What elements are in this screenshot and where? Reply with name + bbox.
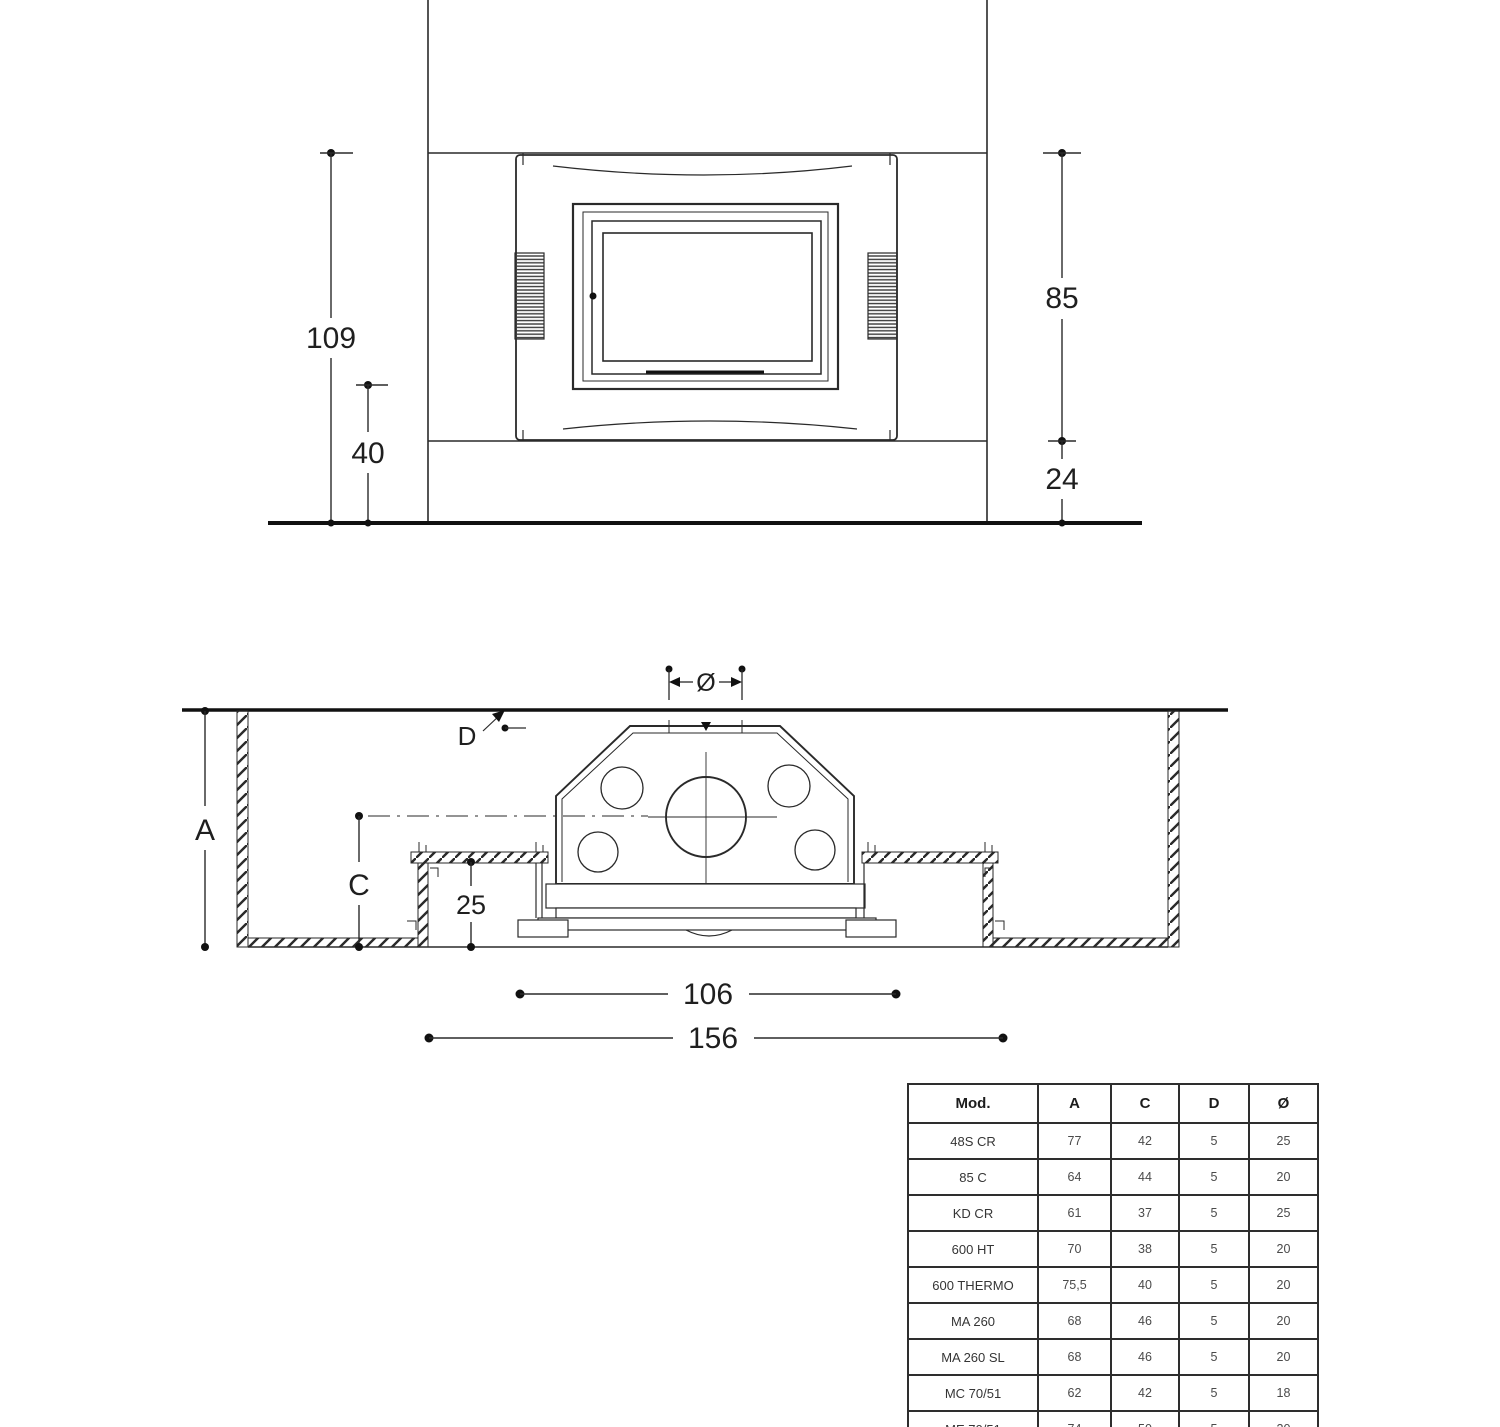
cell-mod: 600 HT (908, 1231, 1038, 1267)
floor-slab-right (993, 938, 1168, 947)
dim-D-label: D (458, 721, 477, 751)
cell-a: 70 (1038, 1231, 1111, 1267)
table-row: 600 HT 70 38 5 20 (908, 1231, 1318, 1267)
cell-diam: 18 (1249, 1375, 1318, 1411)
cell-d: 5 (1179, 1411, 1249, 1427)
table-row: 48S CR 77 42 5 25 (908, 1123, 1318, 1159)
header-a: A (1038, 1084, 1111, 1123)
cell-diam: 20 (1249, 1159, 1318, 1195)
section-wall-left (237, 711, 248, 947)
cell-d: 5 (1179, 1231, 1249, 1267)
cell-c: 46 (1111, 1339, 1179, 1375)
dimension-106: 106 (516, 978, 901, 1011)
door-handle (590, 293, 597, 300)
dim-A-label: A (195, 814, 215, 847)
dimension-24: 24 (1045, 441, 1078, 527)
cell-d: 5 (1179, 1123, 1249, 1159)
cell-c: 44 (1111, 1159, 1179, 1195)
cell-mod: ME 70/51 (908, 1411, 1038, 1427)
cell-diam: 20 (1249, 1267, 1318, 1303)
cell-c: 40 (1111, 1267, 1179, 1303)
cell-mod: 85 C (908, 1159, 1038, 1195)
cell-mod: 600 THERMO (908, 1267, 1038, 1303)
cell-a: 61 (1038, 1195, 1111, 1231)
dim-flue-label: Ø (696, 669, 715, 697)
dimension-25: 25 (456, 858, 486, 951)
dim-40-label: 40 (351, 437, 384, 470)
cell-a: 62 (1038, 1375, 1111, 1411)
dimension-85: 85 (1043, 149, 1081, 445)
dimension-C: C (348, 812, 370, 951)
cell-c: 46 (1111, 1303, 1179, 1339)
spec-table: Mod. A C D Ø 48S CR 77 42 5 25 85 C 64 4… (907, 1083, 1317, 1427)
header-diam: Ø (1249, 1084, 1318, 1123)
section-view-drawing: Ø D (182, 666, 1228, 1056)
cell-a: 64 (1038, 1159, 1111, 1195)
cell-diam: 20 (1249, 1231, 1318, 1267)
dim-C-label: C (348, 869, 370, 902)
cell-mod: MA 260 SL (908, 1339, 1038, 1375)
cell-diam: 25 (1249, 1123, 1318, 1159)
section-wall-right (1168, 711, 1179, 947)
dimension-40: 40 (351, 381, 388, 527)
table-row: 85 C 64 44 5 20 (908, 1159, 1318, 1195)
cell-c: 38 (1111, 1231, 1179, 1267)
dim-25-label: 25 (456, 890, 486, 920)
cell-diam: 25 (1249, 1195, 1318, 1231)
cell-a: 77 (1038, 1123, 1111, 1159)
dim-24-label: 24 (1045, 463, 1078, 496)
dimension-109: 109 (306, 149, 356, 527)
header-mod: Mod. (908, 1084, 1038, 1123)
cell-mod: MA 260 (908, 1303, 1038, 1339)
spec-table-header-row: Mod. A C D Ø (908, 1084, 1318, 1123)
dimension-flue: Ø (666, 666, 746, 701)
dimension-156: 156 (425, 1022, 1008, 1055)
cell-c: 42 (1111, 1123, 1179, 1159)
table-row: 600 THERMO 75,5 40 5 20 (908, 1267, 1318, 1303)
cell-mod: MC 70/51 (908, 1375, 1038, 1411)
table-row: MA 260 68 46 5 20 (908, 1303, 1318, 1339)
cell-d: 5 (1179, 1267, 1249, 1303)
cell-d: 5 (1179, 1303, 1249, 1339)
cell-diam: 20 (1249, 1339, 1318, 1375)
dim-85-label: 85 (1045, 282, 1078, 315)
cell-d: 5 (1179, 1339, 1249, 1375)
vent-grille-left (515, 253, 544, 339)
dim-109-label: 109 (306, 322, 356, 355)
firebox-outer-shell (556, 726, 854, 884)
cell-d: 5 (1179, 1375, 1249, 1411)
cell-mod: 48S CR (908, 1123, 1038, 1159)
table-row: KD CR 61 37 5 25 (908, 1195, 1318, 1231)
dim-156-label: 156 (688, 1022, 738, 1055)
vent-grille-right (868, 253, 897, 339)
header-c: C (1111, 1084, 1179, 1123)
cell-a: 74 (1038, 1411, 1111, 1427)
table-row: ME 70/51 74 50 5 20 (908, 1411, 1318, 1427)
firebox-section (518, 720, 896, 937)
cell-c: 37 (1111, 1195, 1179, 1231)
dim-106-label: 106 (683, 978, 733, 1011)
dimension-A: A (195, 707, 215, 951)
dimension-D: D (458, 710, 526, 751)
cell-diam: 20 (1249, 1303, 1318, 1339)
table-row: MC 70/51 62 42 5 18 (908, 1375, 1318, 1411)
cell-mod: KD CR (908, 1195, 1038, 1231)
cell-diam: 20 (1249, 1411, 1318, 1427)
cell-a: 68 (1038, 1339, 1111, 1375)
cell-c: 50 (1111, 1411, 1179, 1427)
cell-a: 68 (1038, 1303, 1111, 1339)
table-row: MA 260 SL 68 46 5 20 (908, 1339, 1318, 1375)
floor-slab-left (248, 938, 418, 947)
cell-a: 75,5 (1038, 1267, 1111, 1303)
cell-d: 5 (1179, 1159, 1249, 1195)
technical-drawing-page: 109 40 85 24 (0, 0, 1500, 1427)
header-d: D (1179, 1084, 1249, 1123)
cell-c: 42 (1111, 1375, 1179, 1411)
cell-d: 5 (1179, 1195, 1249, 1231)
front-view-drawing: 109 40 85 24 (268, 0, 1142, 527)
